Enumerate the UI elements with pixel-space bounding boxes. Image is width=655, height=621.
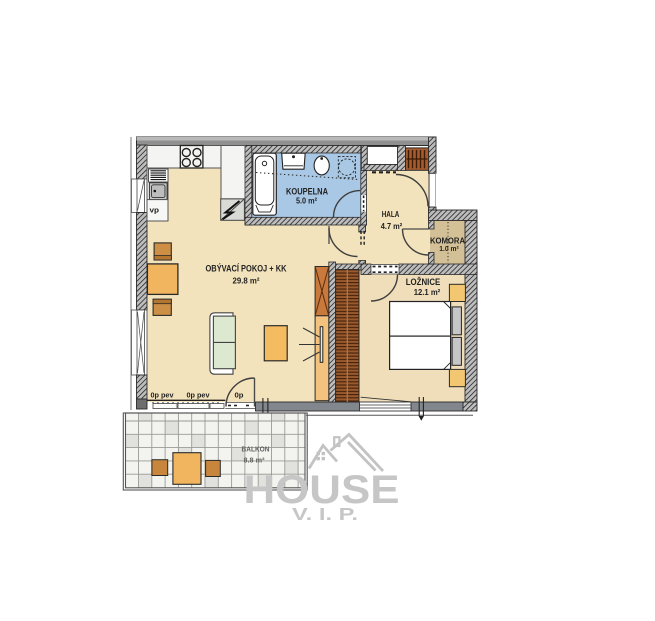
svg-text:0p: 0p [235,391,244,400]
svg-text:V. I. P.: V. I. P. [292,504,358,524]
svg-text:8.8 m²: 8.8 m² [244,456,266,465]
svg-text:vp: vp [150,206,160,215]
svg-text:1.0 m²: 1.0 m² [439,244,459,253]
svg-text:LOŽNICE: LOŽNICE [406,276,441,287]
svg-text:12.1 m²: 12.1 m² [414,287,441,297]
svg-text:0p pev: 0p pev [187,391,211,400]
svg-text:OBÝVACÍ POKOJ + KK: OBÝVACÍ POKOJ + KK [206,263,288,274]
svg-text:BALKON: BALKON [242,445,270,454]
svg-text:HALA: HALA [382,210,400,219]
svg-text:4.7 m²: 4.7 m² [381,221,403,231]
svg-text:0p pev: 0p pev [151,391,175,400]
svg-text:29.8 m²: 29.8 m² [233,276,260,286]
svg-text:5.0 m²: 5.0 m² [296,196,317,206]
